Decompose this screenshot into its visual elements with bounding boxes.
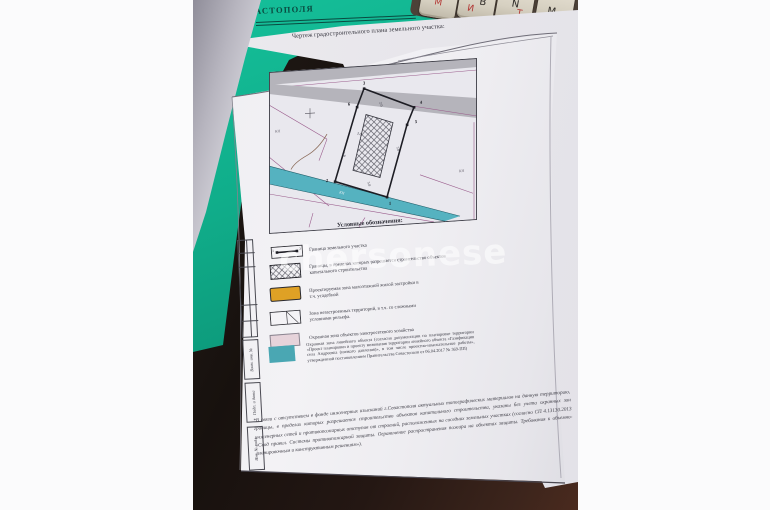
linear-object-protection-zone-symbol bbox=[268, 345, 295, 363]
low-rise-housing-zone-symbol bbox=[269, 286, 301, 302]
key-latin-label: B bbox=[479, 0, 488, 8]
cadastral-label: КН bbox=[275, 129, 281, 133]
undeveloped-territory-symbol bbox=[269, 310, 301, 326]
photo-of-document: АСТОПОЛЯ М B И N Т M bbox=[193, 0, 578, 510]
cadastral-label: КН bbox=[459, 169, 465, 173]
watermark: chersonese bbox=[278, 232, 508, 280]
key-cyrillic-label: М bbox=[434, 0, 443, 8]
stamp-cell: Взам. инв. № bbox=[242, 339, 260, 380]
site-plan-map: 1 2 3 4 5 6 2.0 2.0 3.0 5.0 5.0 КН КН bbox=[269, 58, 477, 234]
stamp-label: Взам. инв. № bbox=[248, 347, 254, 371]
stamp-label: Подп. и дата bbox=[250, 390, 256, 415]
key-cyrillic-label: И bbox=[466, 3, 474, 14]
stamp-grid bbox=[237, 239, 258, 338]
screenshot: АСТОПОЛЯ М B И N Т M bbox=[0, 0, 770, 510]
